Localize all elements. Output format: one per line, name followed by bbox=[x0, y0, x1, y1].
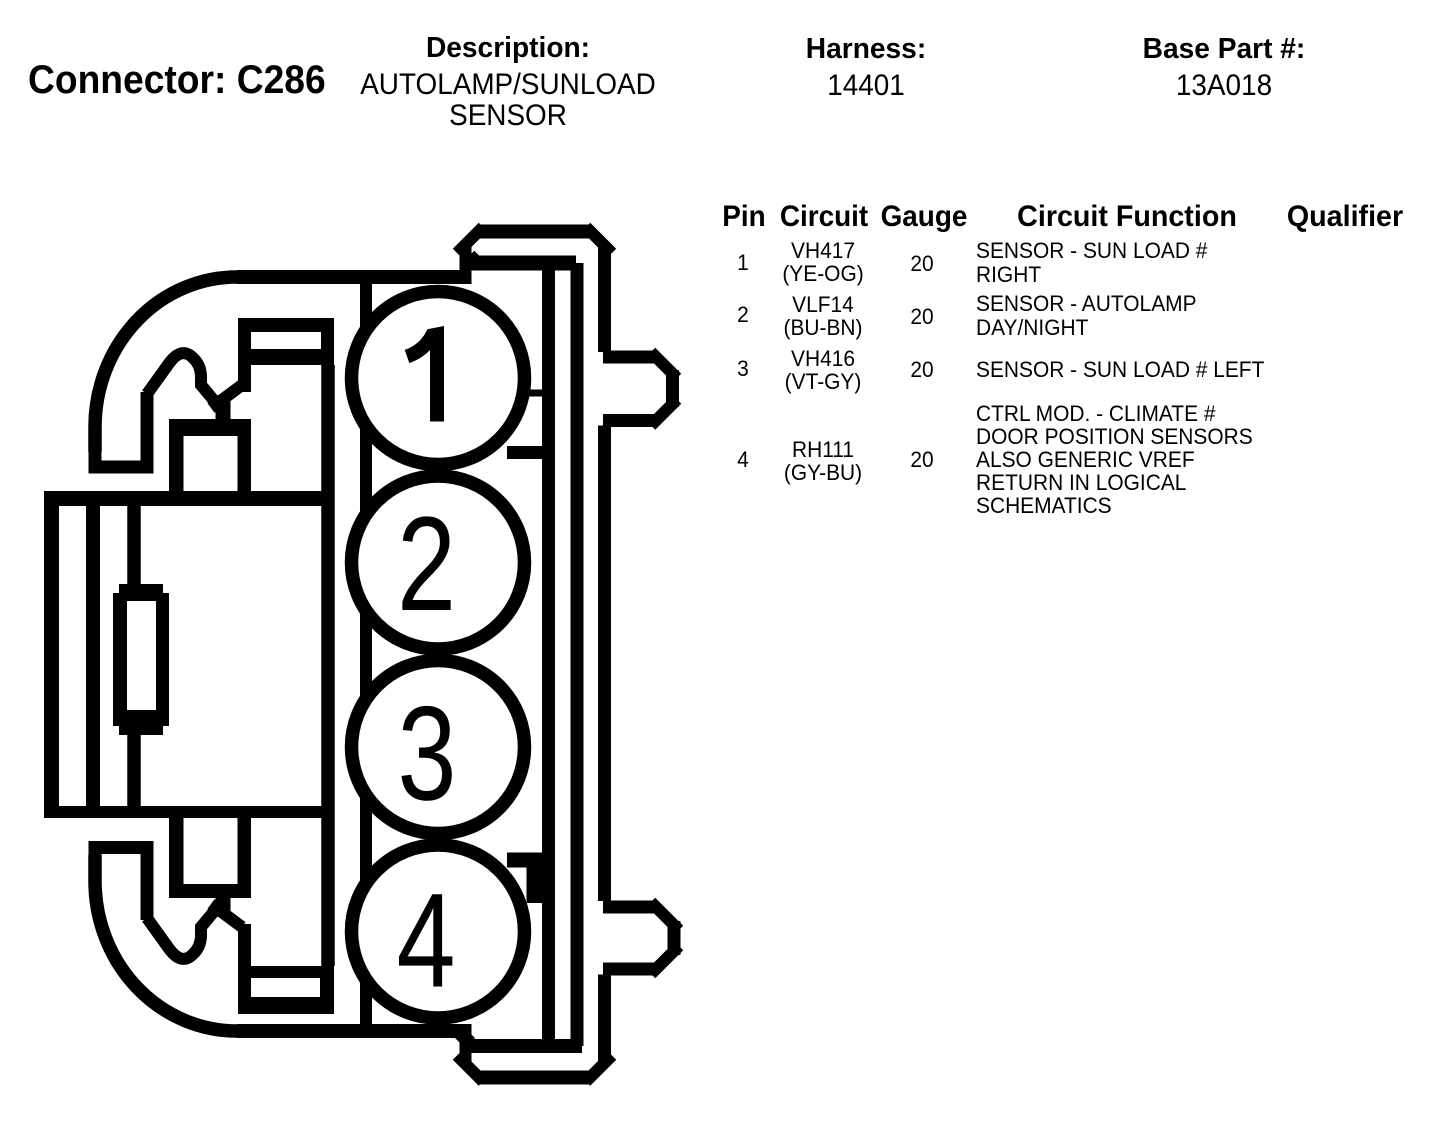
svg-text:2: 2 bbox=[397, 489, 456, 639]
svg-text:3: 3 bbox=[398, 679, 457, 829]
svg-text:4: 4 bbox=[397, 866, 456, 1016]
